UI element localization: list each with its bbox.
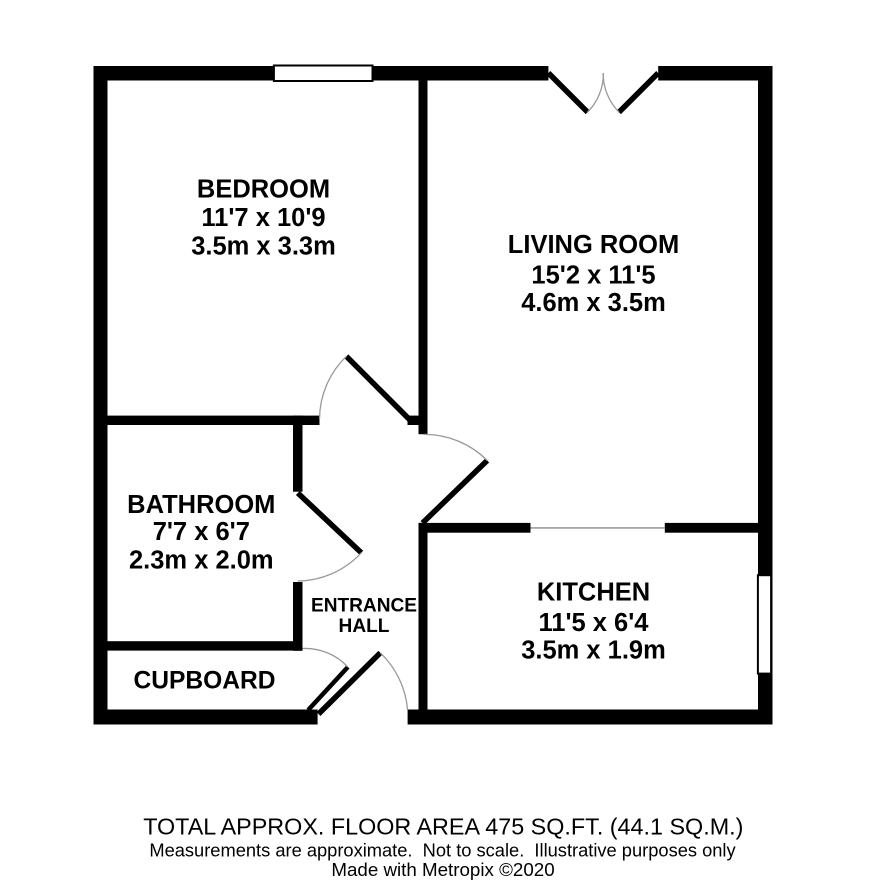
svg-text:7'7 x 6'7: 7'7 x 6'7 [153, 518, 250, 546]
svg-text:BEDROOM: BEDROOM [197, 176, 330, 204]
svg-text:15'2 x 11'5: 15'2 x 11'5 [531, 261, 655, 289]
svg-text:11'7 x 10'9: 11'7 x 10'9 [201, 204, 325, 232]
svg-text:Made with Metropix ©2020: Made with Metropix ©2020 [331, 859, 554, 880]
svg-text:4.6m x 3.5m: 4.6m x 3.5m [521, 289, 666, 317]
svg-text:3.5m x 1.9m: 3.5m x 1.9m [521, 637, 666, 665]
svg-text:HALL: HALL [339, 616, 390, 637]
svg-text:TOTAL APPROX. FLOOR AREA 475 S: TOTAL APPROX. FLOOR AREA 475 SQ.FT. (44.… [143, 813, 743, 839]
svg-text:KITCHEN: KITCHEN [537, 579, 650, 607]
svg-text:3.5m x 3.3m: 3.5m x 3.3m [191, 232, 336, 260]
svg-text:CUPBOARD: CUPBOARD [133, 668, 275, 695]
svg-text:11'5 x 6'4: 11'5 x 6'4 [539, 609, 650, 637]
svg-text:Measurements are approximate.: Measurements are approximate. Not to sca… [149, 839, 736, 860]
svg-text:LIVING ROOM: LIVING ROOM [508, 231, 679, 259]
svg-text:2.3m x 2.0m: 2.3m x 2.0m [129, 546, 274, 574]
svg-text:ENTRANCE: ENTRANCE [311, 595, 417, 616]
svg-text:BATHROOM: BATHROOM [127, 491, 275, 519]
